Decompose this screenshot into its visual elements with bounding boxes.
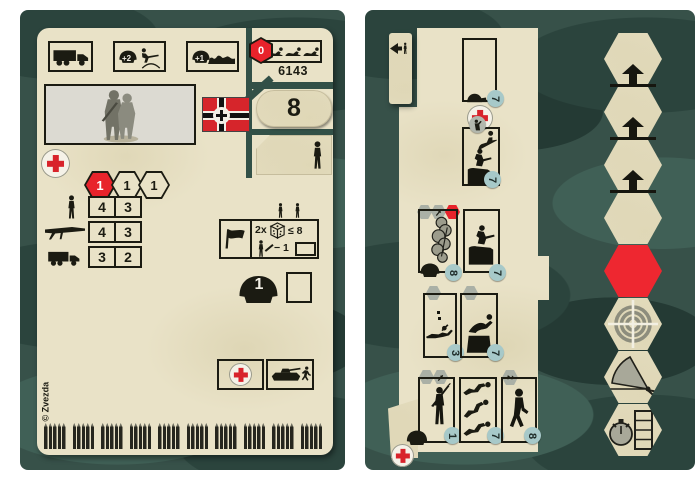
- infantry-icon: [311, 141, 324, 169]
- badge-value: 7: [490, 432, 502, 438]
- firing-soldier-icon: [137, 48, 161, 63]
- truck-icon: [47, 249, 81, 266]
- mound-shooter-icon: [466, 222, 496, 266]
- unit-photo: [44, 84, 196, 145]
- trench-line: [140, 62, 162, 69]
- reinforce-label: +2: [122, 54, 131, 63]
- order-badge: 7: [487, 344, 504, 361]
- thrower-icon: [473, 119, 483, 131]
- badge-value: 8: [448, 269, 460, 275]
- truck-icon: [53, 47, 89, 66]
- unit-type-tab: [256, 135, 332, 175]
- helmet-icon: [405, 429, 429, 446]
- ammo-group: [301, 423, 323, 450]
- reinforcement-slot: +2: [113, 41, 166, 72]
- strength-value: 8: [287, 94, 301, 123]
- crawling-soldier-icon: [303, 47, 319, 56]
- soldier-icon: [257, 240, 265, 257]
- helmet-icon: [419, 262, 441, 278]
- crawling-soldier-icon: [285, 47, 301, 56]
- running-soldier-icon: [301, 366, 311, 382]
- soldier-icon: [277, 203, 284, 218]
- tank-option-box: [266, 359, 314, 390]
- smoke-cloud-icon: [426, 215, 455, 265]
- repair-label: +1: [195, 54, 204, 63]
- strength-pill: 8: [256, 90, 332, 127]
- badge-value: 7: [490, 349, 502, 355]
- bayonet-soldier-icon: [428, 383, 451, 429]
- order-badge: 7: [487, 90, 504, 107]
- iron-cross-bar: [220, 110, 223, 121]
- move-value: 1: [150, 178, 157, 193]
- infantry-icon: [66, 195, 77, 219]
- tank-icon: [270, 366, 302, 382]
- ammo-strip: [44, 423, 332, 450]
- flag-cell: [221, 221, 252, 257]
- stat-move: 3: [88, 246, 116, 268]
- medic-cross-icon: [41, 149, 70, 178]
- command-check-box: 2x ≤ 8 − 1: [219, 219, 319, 259]
- prone-shooter-icon: [425, 323, 454, 341]
- medic-kneeling-icon: [466, 90, 487, 104]
- result-slot: [295, 242, 316, 256]
- wreck-icon: [208, 53, 235, 65]
- dice-threshold: ≤ 8: [288, 225, 303, 237]
- penalty-value: − 1: [274, 242, 289, 254]
- medic-option-box: [217, 359, 264, 390]
- casualty-value: 0: [258, 45, 264, 57]
- stats-row-truck: 3 2: [88, 246, 142, 268]
- order-badge: 8: [524, 427, 541, 444]
- ammo-group: [215, 423, 237, 450]
- german-war-flag: [202, 97, 250, 132]
- iron-cross-disc: [213, 107, 230, 124]
- stat-move: 4: [88, 221, 116, 243]
- medic-cross-icon: [229, 363, 252, 386]
- ammo-group: [73, 423, 95, 450]
- shot-dot: [437, 311, 440, 314]
- ammo-group: [101, 423, 123, 450]
- ammo-group: [130, 423, 152, 450]
- copyright-text: © Zvezda: [41, 332, 54, 422]
- soldier-icon: [294, 203, 301, 218]
- stat-fire: 3: [114, 196, 142, 218]
- black-flag-icon: [224, 225, 247, 252]
- order-badge: 8: [445, 264, 462, 281]
- ammo-group: [158, 423, 180, 450]
- catalog-number: 6143: [263, 64, 323, 78]
- retreat-tab: [389, 33, 412, 104]
- rank-slot: [286, 272, 312, 303]
- product-photo-two-game-cards: +2 +1 0 6143: [0, 0, 700, 480]
- stats-row-infantry: 4 3: [88, 196, 142, 218]
- dice-icon: [269, 222, 286, 239]
- medic-cross-icon: [391, 444, 414, 467]
- stats-row-machine-gun: 4 3: [88, 221, 142, 243]
- ammo-group: [187, 423, 209, 450]
- helmet-rank-value: 1: [251, 276, 267, 294]
- ammo-group: [244, 423, 266, 450]
- stat-fire: 2: [114, 246, 142, 268]
- stat-move: 4: [88, 196, 116, 218]
- badge-value: 1: [447, 432, 459, 438]
- walking-soldier-icon: [507, 388, 531, 428]
- badge-value: 7: [492, 269, 504, 275]
- ammo-group: [44, 423, 66, 450]
- repair-slot: +1: [186, 41, 239, 72]
- advance-arrow: [610, 117, 656, 143]
- falling-soldier-icon: [462, 399, 491, 419]
- order-badge: 7: [489, 264, 506, 281]
- ammo-group: [272, 423, 294, 450]
- falling-soldier-icon: [463, 378, 492, 399]
- advance-arrow: [610, 64, 656, 90]
- grenadier-token: [469, 116, 486, 133]
- retreat-left-arrow-icon: [390, 41, 410, 56]
- order-badge: 7: [484, 171, 501, 188]
- soldiers-photo-illustration: [46, 86, 194, 143]
- badge-value: 8: [527, 432, 539, 438]
- stat-fire: 3: [114, 221, 142, 243]
- move-value: 1: [123, 178, 130, 193]
- pointer-line: [265, 244, 274, 252]
- shot-dot: [438, 317, 441, 320]
- badge-value: 7: [487, 176, 499, 182]
- transport-truck-slot: [48, 41, 93, 72]
- advance-arrow: [610, 170, 656, 196]
- dice-multiplier: 2x: [255, 224, 267, 236]
- card-notch: [246, 129, 333, 135]
- machine-gun-icon: [44, 225, 86, 240]
- move-value: 1: [96, 178, 103, 193]
- badge-value: 7: [490, 95, 502, 101]
